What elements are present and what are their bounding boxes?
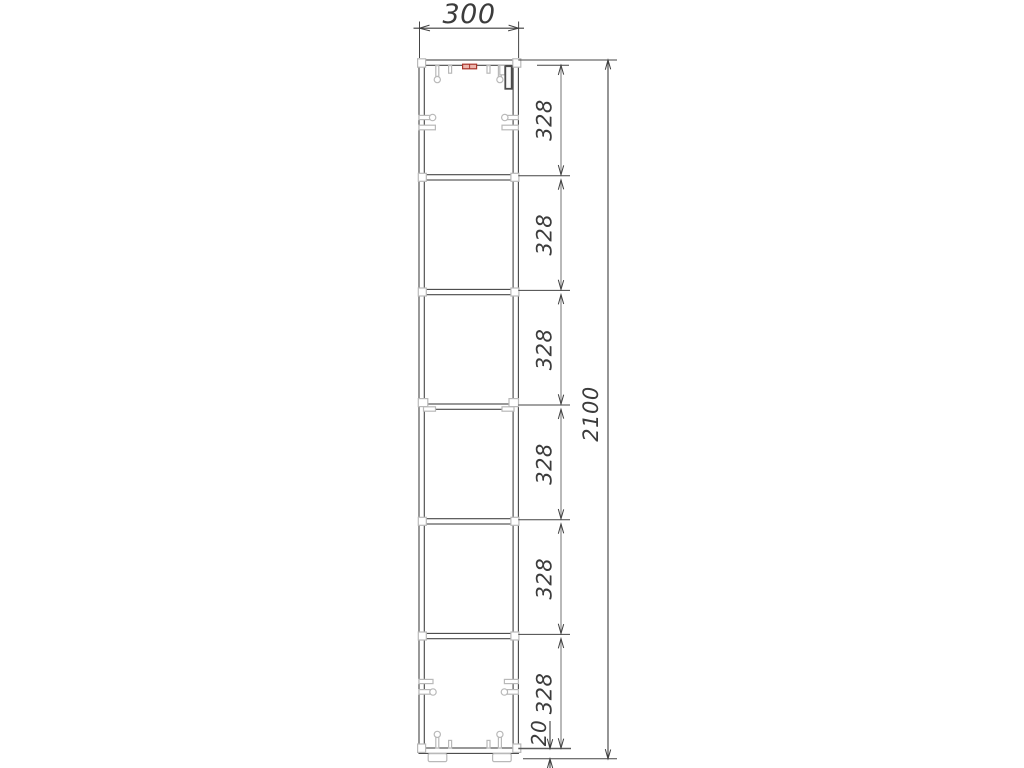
screw-icon <box>436 737 439 748</box>
shelf-bracket-tab-icon <box>502 407 514 411</box>
screw-icon <box>436 66 439 77</box>
dowel-icon <box>504 679 518 683</box>
upper-side-dowels <box>419 114 518 130</box>
dim-section-2-label: 328 <box>532 214 556 256</box>
dim-section-3: 328 <box>532 295 563 404</box>
hinge-plate-icon <box>500 65 505 74</box>
dowel-icon <box>419 125 435 130</box>
dim-section-5: 328 <box>532 524 563 633</box>
dowel-icon <box>419 115 430 119</box>
dowel-icon <box>502 125 518 130</box>
dowel-icon <box>449 740 452 748</box>
dowel-icon <box>507 115 518 119</box>
dim-section-2: 328 <box>532 180 563 289</box>
lower-side-dowels <box>419 679 518 695</box>
shelf-bracket-tab-icon <box>424 407 436 411</box>
dowel-icon <box>507 690 518 695</box>
hinge-icon <box>505 66 511 89</box>
shelf-pin-icon <box>511 632 519 640</box>
dim-total: 2100 <box>518 60 617 759</box>
dowel-head-icon <box>501 689 507 695</box>
dowel-icon <box>419 690 430 695</box>
bottom-panel <box>419 748 518 753</box>
shelf-3 <box>424 404 513 409</box>
screw-head-icon <box>434 731 440 737</box>
dim-width-label: 300 <box>442 0 495 30</box>
dowel-icon <box>449 66 452 74</box>
shelf-bracket-icon <box>418 399 428 407</box>
dim-plinth-label: 20 <box>527 720 551 746</box>
shelf-pin-icon <box>511 288 519 296</box>
dim-section-1-label: 328 <box>532 99 556 141</box>
dim-total-label: 2100 <box>579 386 603 441</box>
dim-section-3-label: 328 <box>532 329 556 371</box>
shelf-pin-icon <box>418 632 426 640</box>
screw-head-icon <box>434 77 440 83</box>
shelf-pin-icon <box>511 173 519 181</box>
dim-section-6-label: 328 <box>532 673 556 715</box>
dowel-head-icon <box>502 114 508 120</box>
dim-section-4: 328 <box>532 409 563 518</box>
dowel-head-icon <box>429 114 435 120</box>
dowel-icon <box>487 740 490 748</box>
drawing-canvas: 300 328 328 328 <box>0 0 1024 768</box>
shelf-bracket-icon <box>509 399 519 407</box>
foot-icon <box>493 754 512 762</box>
shelves <box>424 175 513 639</box>
dowel-head-icon <box>430 689 436 695</box>
shelf-pin-icon <box>511 517 519 525</box>
screw-icon <box>498 737 501 748</box>
dim-section-5-label: 328 <box>532 558 556 600</box>
corner-fitting-icon <box>418 59 426 67</box>
dim-plinth: 20 <box>527 720 553 768</box>
screw-head-icon <box>497 77 503 83</box>
foot-icon <box>428 754 447 762</box>
shelf-pin-icon <box>418 517 426 525</box>
dim-width: 300 <box>414 0 525 58</box>
shelf-2 <box>424 289 513 294</box>
dim-section-4-label: 328 <box>532 443 556 485</box>
shelf-pin-icon <box>418 288 426 296</box>
dim-section-1: 328 <box>532 65 563 174</box>
shelf-4 <box>424 519 513 524</box>
shelf-1 <box>424 175 513 180</box>
shelf-pin-icon <box>418 173 426 181</box>
screw-head-icon <box>497 731 503 737</box>
shelf-5 <box>424 633 513 638</box>
dim-sections: 328 328 328 328 328 <box>518 65 571 748</box>
bottom-hardware <box>418 731 521 761</box>
dowel-icon <box>487 66 490 74</box>
dowel-icon <box>419 679 433 683</box>
corner-fitting-icon <box>418 744 426 752</box>
cabinet-elevation-drawing: 300 328 328 328 <box>0 0 1024 768</box>
